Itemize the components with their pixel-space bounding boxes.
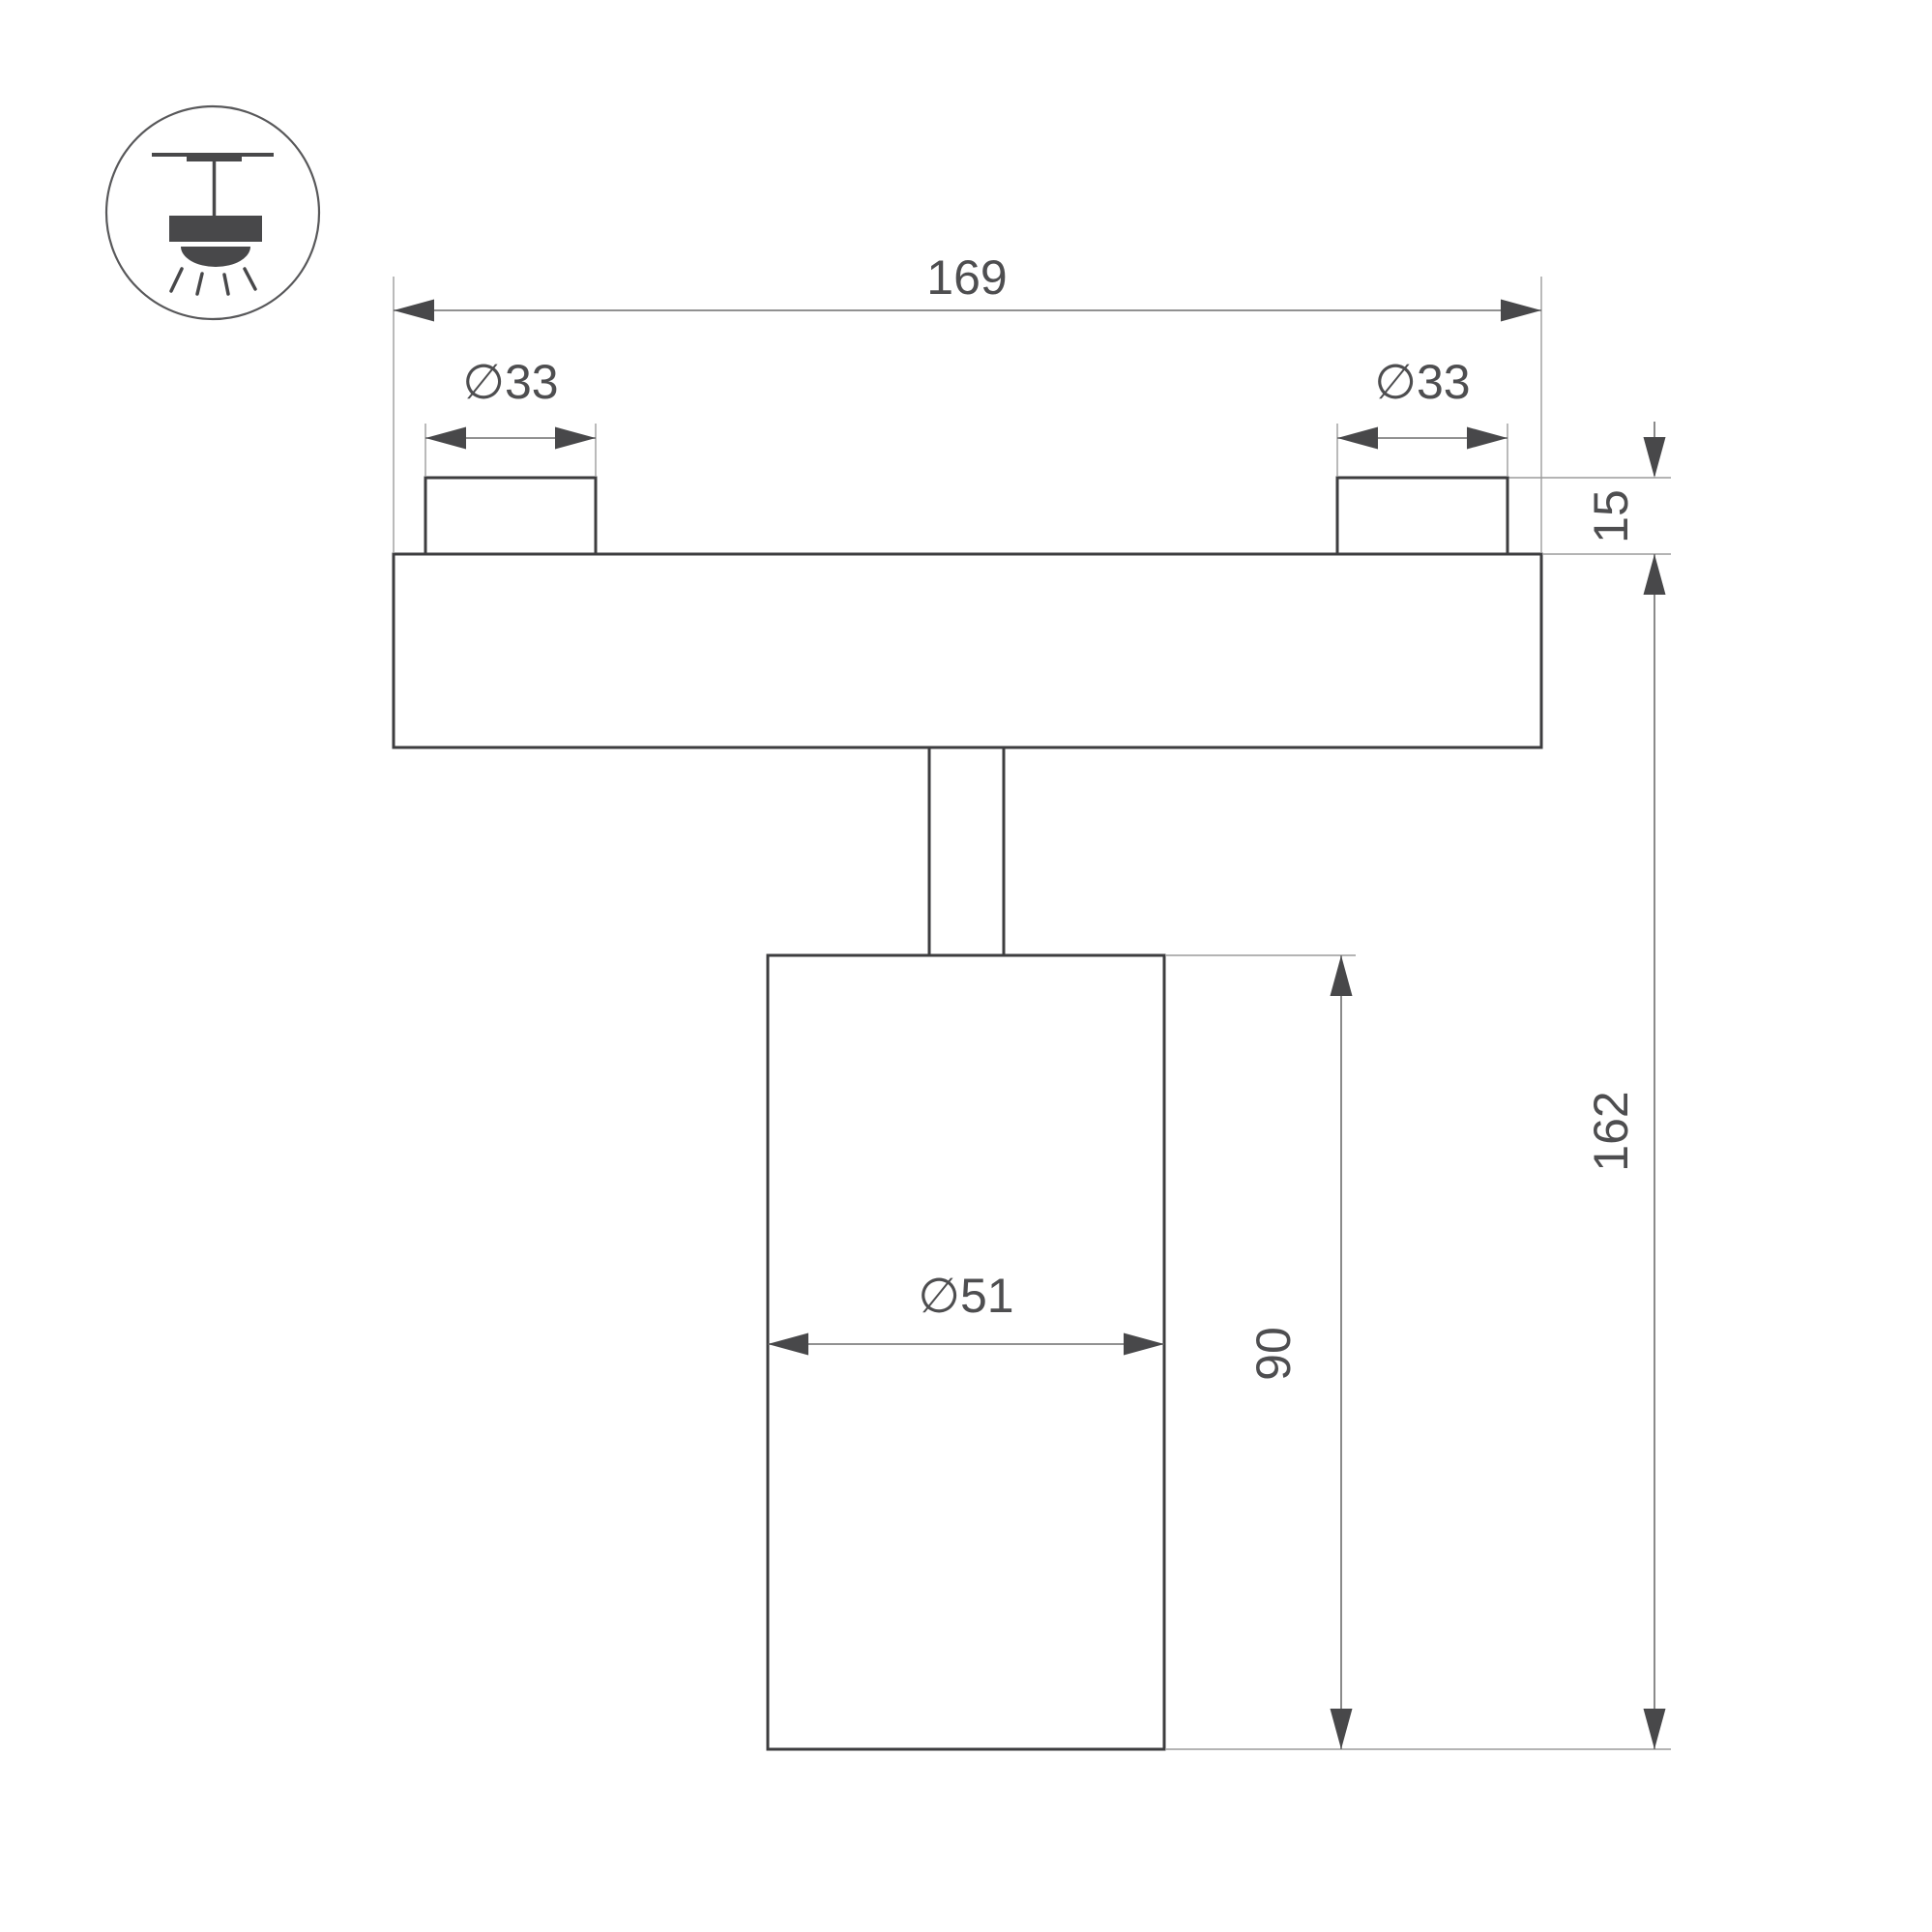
dim-left-boss-diameter: ∅33: [425, 355, 596, 450]
dim-overall-width: 169: [394, 250, 1541, 322]
lamp-lens-icon: [181, 247, 250, 267]
left-track-boss: [425, 478, 596, 554]
arrow-up-icon: [1331, 955, 1353, 996]
arrow-down-icon: [1644, 1709, 1666, 1749]
track-adapter-plate: [394, 554, 1541, 747]
light-rays-icon: [171, 269, 255, 294]
dim-overall-height: 162: [1584, 554, 1666, 1749]
fixture-outline: [394, 478, 1541, 1749]
arrow-left-icon: [1337, 427, 1378, 450]
arrow-right-icon: [1467, 427, 1508, 450]
dim-label-body-diameter: ∅51: [918, 1269, 1013, 1323]
spotlight-dimension-drawing: 169 ∅33 ∅33 15 162: [0, 0, 1932, 1932]
light-ray: [197, 274, 202, 294]
arrow-left-icon: [394, 300, 434, 322]
dim-label-body-height: 90: [1246, 1327, 1301, 1381]
lamp-body-icon: [169, 216, 262, 242]
dim-boss-height: 15: [1584, 422, 1666, 543]
dim-right-boss-diameter: ∅33: [1337, 355, 1508, 450]
dim-label-right-boss-diameter: ∅33: [1374, 355, 1470, 409]
right-track-boss: [1337, 478, 1508, 554]
light-ray: [245, 269, 255, 289]
dim-body-height: 90: [1246, 955, 1353, 1749]
light-ray: [224, 275, 228, 294]
swivel-stem: [929, 747, 1004, 955]
technical-drawing-page: 169 ∅33 ∅33 15 162: [0, 0, 1932, 1932]
arrow-up-icon: [1644, 554, 1666, 595]
dim-label-overall-height: 162: [1584, 1091, 1638, 1171]
dim-label-boss-height: 15: [1584, 489, 1638, 543]
arrow-right-icon: [1501, 300, 1541, 322]
dim-label-overall-width: 169: [926, 250, 1007, 305]
dim-label-left-boss-diameter: ∅33: [462, 355, 558, 409]
mount-type-icon: [106, 106, 319, 319]
light-ray: [171, 269, 182, 291]
arrow-right-icon: [555, 427, 596, 450]
arrow-left-icon: [425, 427, 466, 450]
arrow-down-icon: [1331, 1709, 1353, 1749]
arrow-down-icon: [1644, 437, 1666, 478]
cylindrical-lamp-body: [768, 955, 1164, 1749]
